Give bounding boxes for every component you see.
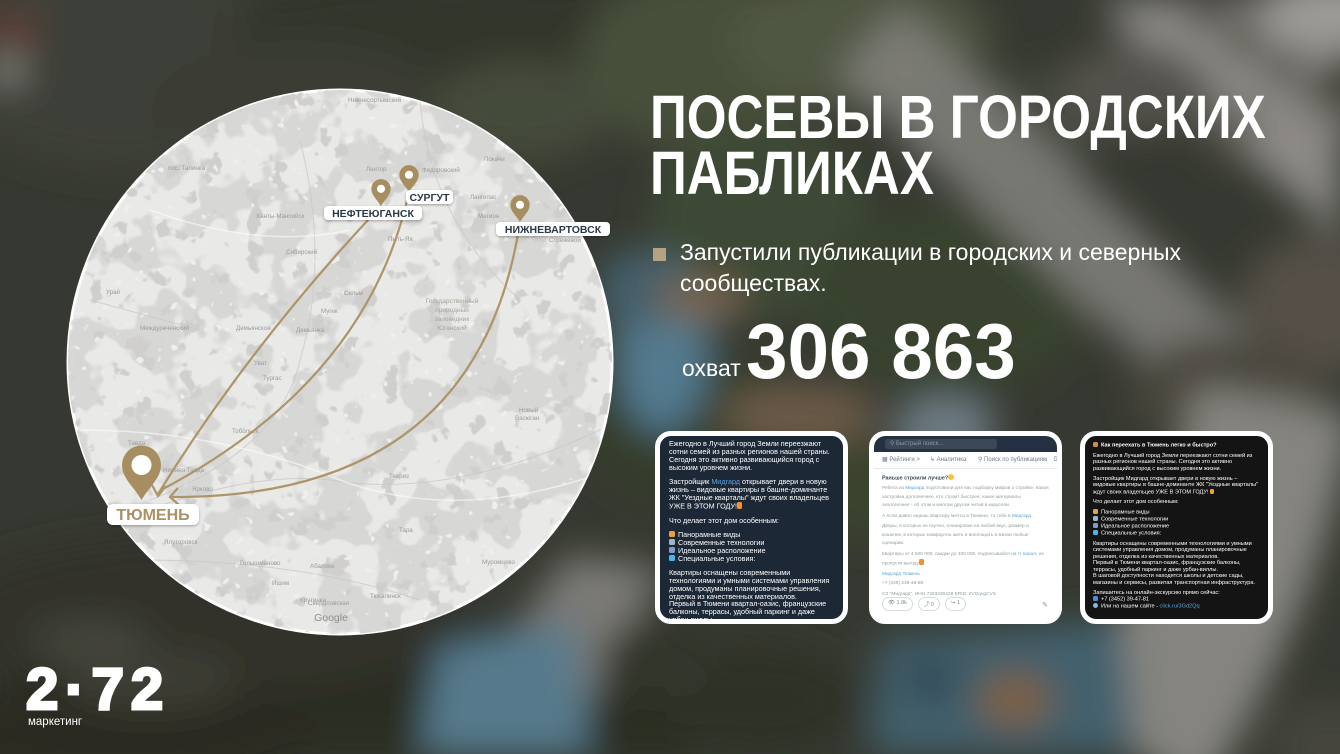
svg-text:Государственный: Государственный xyxy=(426,297,479,305)
svg-text:Ялуторовск: Ялуторовск xyxy=(164,539,198,546)
svg-text:Тара: Тара xyxy=(399,527,413,534)
svg-text:Сельм: Сельм xyxy=(344,290,363,297)
svg-text:Стрежевой: Стрежевой xyxy=(549,237,581,244)
svg-text:Нижнесортымский: Нижнесортымский xyxy=(348,97,402,104)
svg-text:природный: природный xyxy=(435,306,469,314)
svg-text:заповедник: заповедник xyxy=(435,316,470,323)
svg-text:Мегион: Мегион xyxy=(478,213,499,220)
svg-text:СУРГУТ: СУРГУТ xyxy=(410,192,450,204)
svg-text:Google: Google xyxy=(314,612,348,624)
svg-text:Васюган: Васюган xyxy=(515,415,539,422)
svg-text:Новый: Новый xyxy=(519,407,539,414)
svg-text:Голышманово: Голышманово xyxy=(240,560,281,567)
svg-text:Тургас: Тургас xyxy=(263,375,282,382)
svg-text:Урай: Урай xyxy=(106,289,121,296)
svg-text:Федоровский: Федоровский xyxy=(422,167,460,174)
svg-text:НЕФТЕЮГАНСК: НЕФТЕЮГАНСК xyxy=(332,208,414,220)
svg-text:Тевриз: Тевриз xyxy=(389,473,409,480)
svg-text:Ишим: Ишим xyxy=(272,580,289,587)
svg-text:Юганский: Юганский xyxy=(437,324,467,332)
svg-text:Ялуторовск: Ялуторовск xyxy=(150,585,184,592)
svg-text:Демьянка: Демьянка xyxy=(296,327,325,334)
svg-text:Абалоке: Абалоке xyxy=(310,563,335,570)
svg-text:Сибирский: Сибирский xyxy=(286,249,318,256)
svg-text:Мугек: Мугек xyxy=(321,308,338,315)
svg-text:НИЖНЕВАРТОВСК: НИЖНЕВАРТОВСК xyxy=(505,224,602,236)
svg-text:Покачи: Покачи xyxy=(484,156,505,163)
svg-text:Тюкалинск: Тюкалинск xyxy=(370,593,401,600)
svg-text:Демьянское: Демьянское xyxy=(236,325,271,332)
svg-text:Лантор: Лантор xyxy=(366,166,387,173)
svg-text:пос. Талинка: пос. Талинка xyxy=(168,165,206,172)
svg-text:Междуреченский: Междуреченский xyxy=(140,325,189,332)
svg-text:Лангепас: Лангепас xyxy=(470,194,496,201)
svg-text:Ярково: Ярково xyxy=(192,486,213,493)
svg-text:Пыть-Ях: Пыть-Ях xyxy=(388,236,413,243)
svg-text:Свердловская: Свердловская xyxy=(308,600,349,607)
svg-text:Уват: Уват xyxy=(254,360,267,367)
svg-text:Муромцево: Муромцево xyxy=(482,559,516,566)
svg-text:Ханты-Мансийск: Ханты-Мансийск xyxy=(256,213,305,220)
svg-text:ТЮМЕНЬ: ТЮМЕНЬ xyxy=(116,507,189,524)
